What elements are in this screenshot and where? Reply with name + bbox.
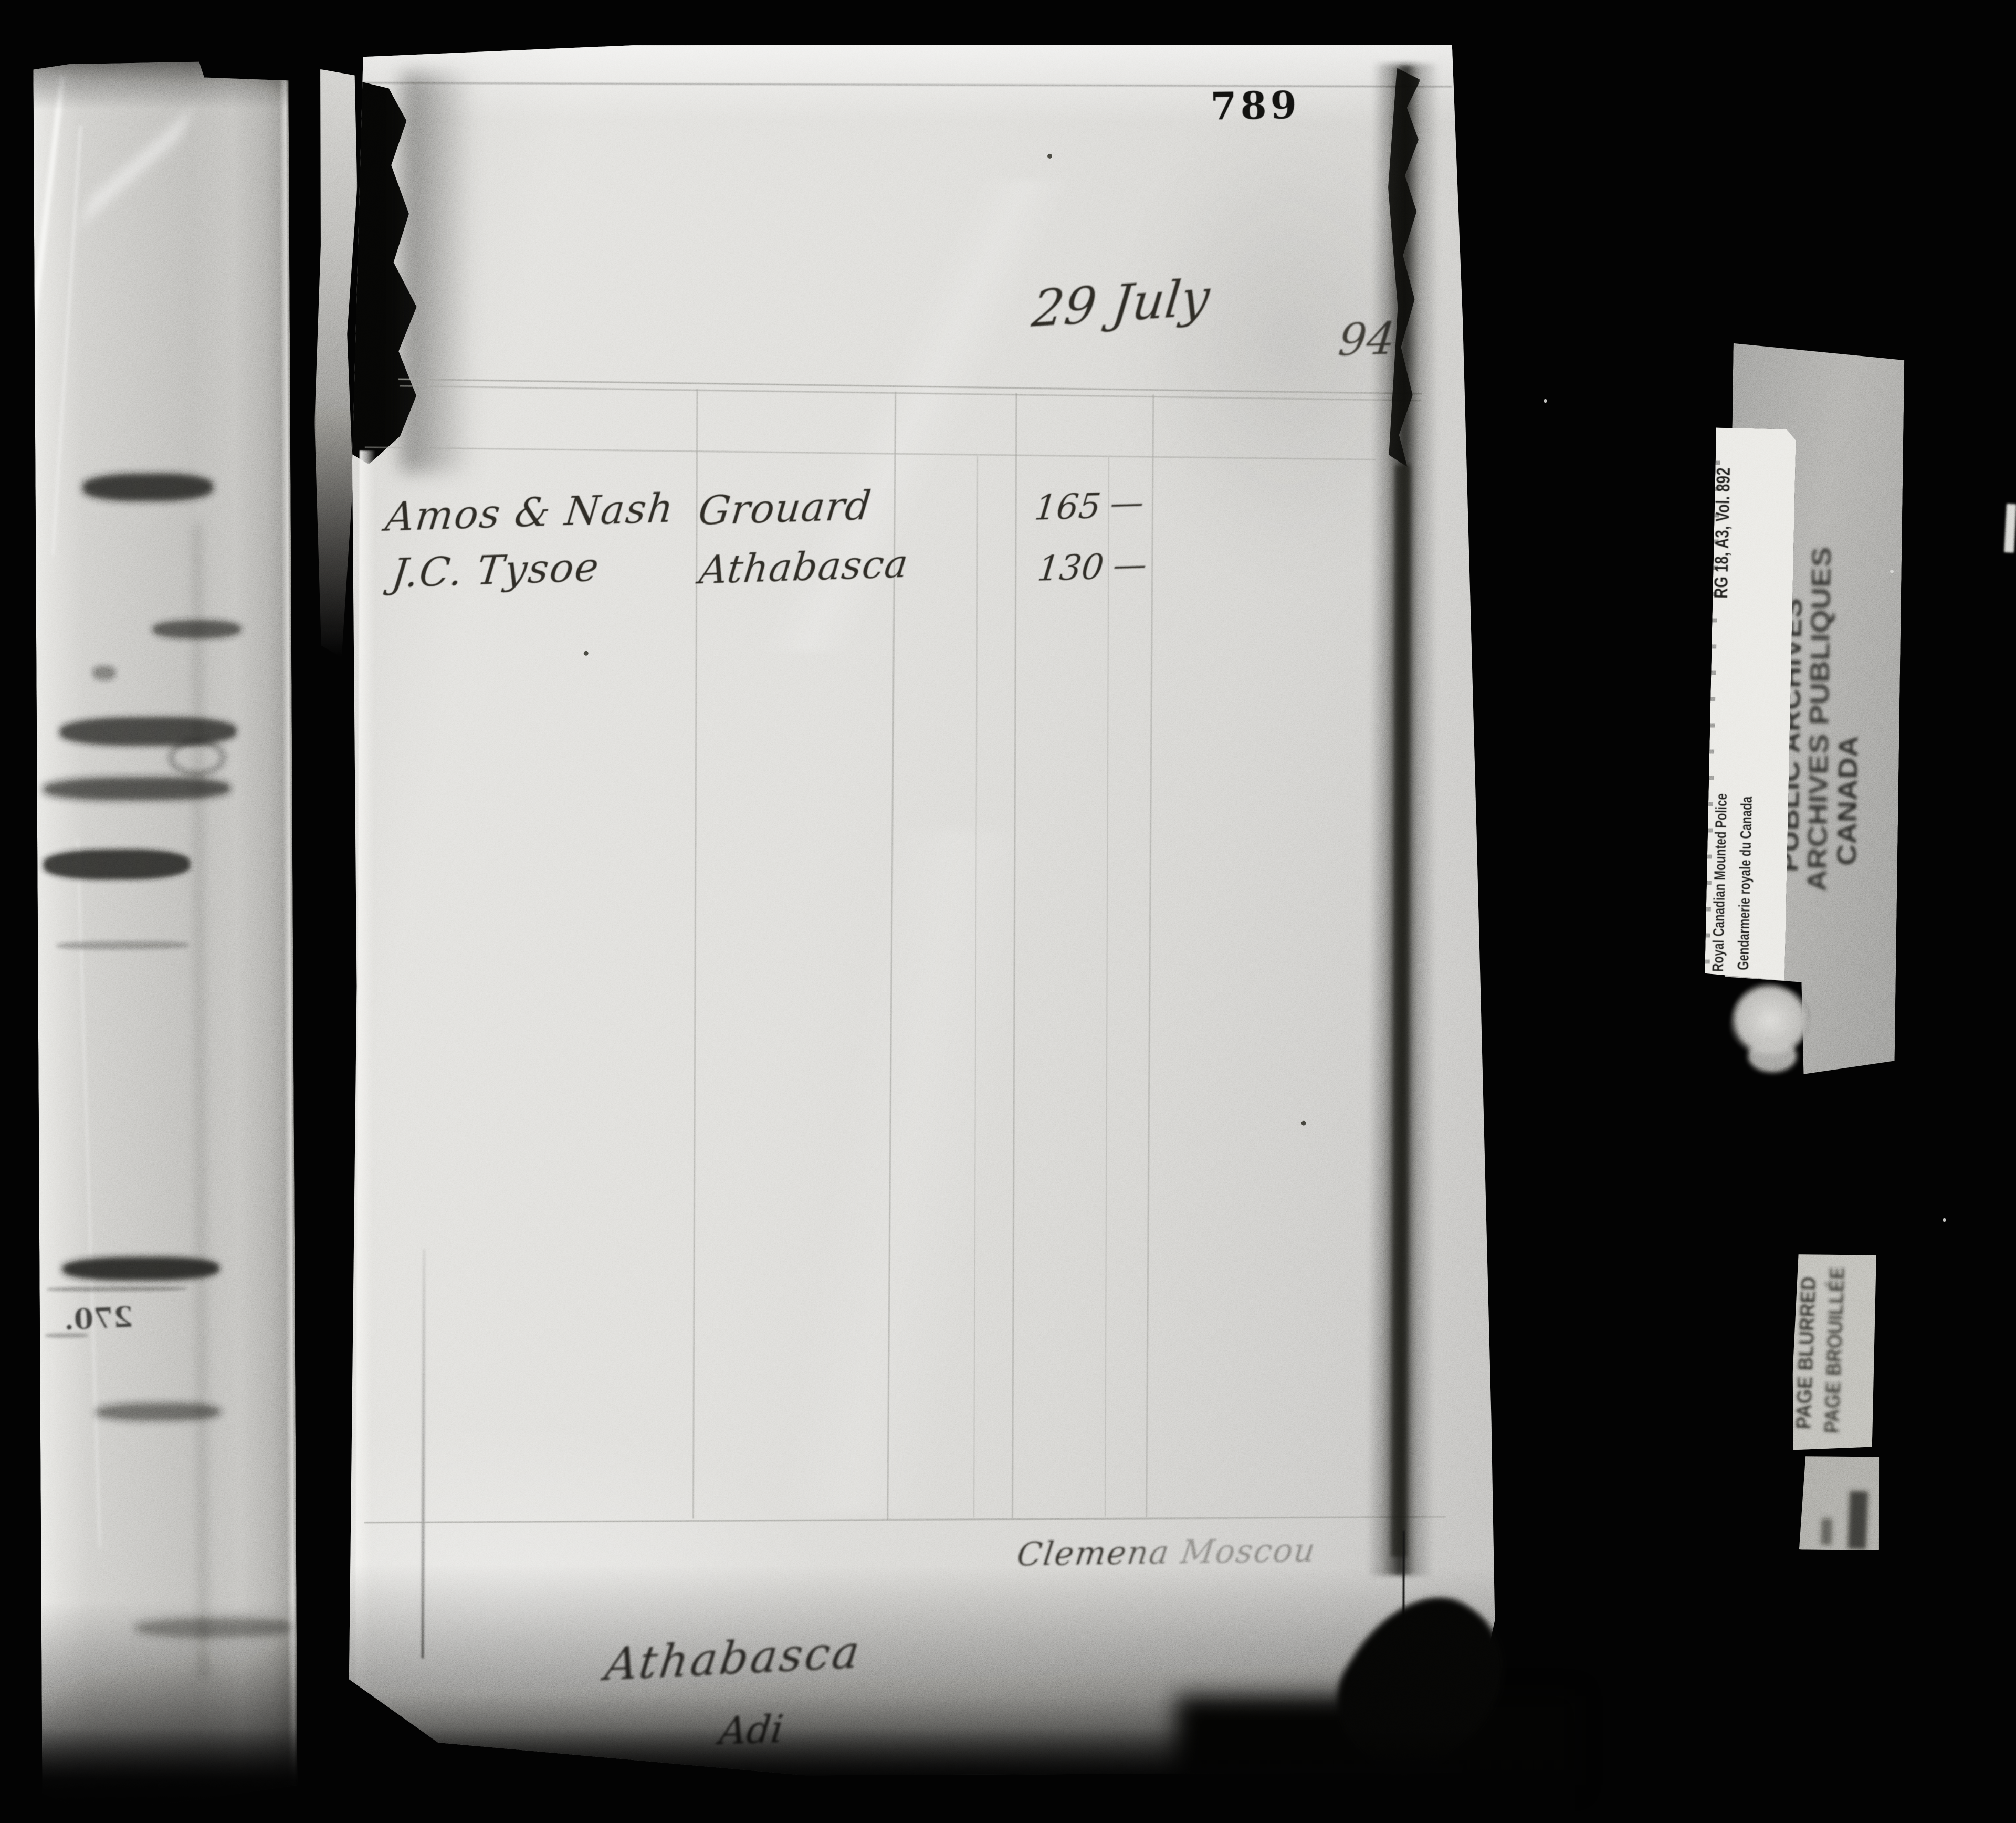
- bottom-vignette: [0, 1727, 1575, 1823]
- page-blurred-label: PAGE BLURRED PAGE BROUILLÉE: [1790, 1252, 1878, 1452]
- page-number-stamp: 789: [1210, 82, 1300, 128]
- dust-speck: [1543, 399, 1547, 403]
- dust-speck: [584, 651, 589, 656]
- paper-crease: [365, 829, 1444, 1515]
- left-page-strip: 270.: [33, 61, 297, 1811]
- ledger-row-cents-dash: —: [1108, 483, 1146, 523]
- dust-speck: [1890, 570, 1894, 573]
- rcmp-title-fr: Gendarmerie royale du Canada: [1736, 796, 1755, 970]
- microfilm-scan: 270. 789 29 July 94 Amos & Nash Grouar: [0, 0, 2016, 1823]
- ledger-row-name: J.C. Tysoe: [389, 543, 602, 597]
- record-group-reference: RG 18, A3, Vol. 892: [1712, 467, 1734, 599]
- curled-paper-lump: [1748, 1040, 1797, 1072]
- ledger-row-cents-dash: —: [1111, 545, 1149, 585]
- dust-speck: [1942, 1218, 1946, 1222]
- ledger-row-place: Athabasca: [697, 541, 911, 593]
- strip-fade: [33, 61, 297, 1811]
- label-fragment-mark: [1847, 1491, 1868, 1550]
- page-blurred-text-fr: PAGE BROUILLÉE: [1821, 1266, 1848, 1434]
- document-page: 789 29 July 94 Amos & Nash Grouard 165 —…: [333, 41, 1500, 1778]
- ledger-row-amount: 130: [1035, 547, 1106, 589]
- page-edge-sliver: [313, 69, 358, 658]
- rcmp-title-en: Royal Canadian Mounted Police: [1710, 793, 1730, 972]
- label-fragment-mark: [1820, 1518, 1833, 1546]
- dust-speck: [1047, 154, 1052, 159]
- ledger-row-place: Grouard: [696, 482, 874, 535]
- archives-stamp-country: CANADA: [1833, 736, 1862, 866]
- dust-speck: [1301, 1121, 1306, 1126]
- table-rule-bottom: [364, 1516, 1446, 1524]
- page-blurred-text-en: PAGE BLURRED: [1793, 1276, 1819, 1429]
- ledger-row-amount: 165: [1033, 486, 1103, 528]
- handwritten-date: 29 July: [1029, 268, 1212, 339]
- label-fragment: [1799, 1454, 1882, 1552]
- film-edge-glint: [2004, 504, 2016, 553]
- ledger-row-name: Amos & Nash: [383, 485, 677, 541]
- reference-card: RG 18, A3, Vol. 892 Royal Canadian Mount…: [1705, 428, 1796, 981]
- archives-stamp-line-fr: ARCHIVES PUBLIQUES: [1803, 547, 1835, 892]
